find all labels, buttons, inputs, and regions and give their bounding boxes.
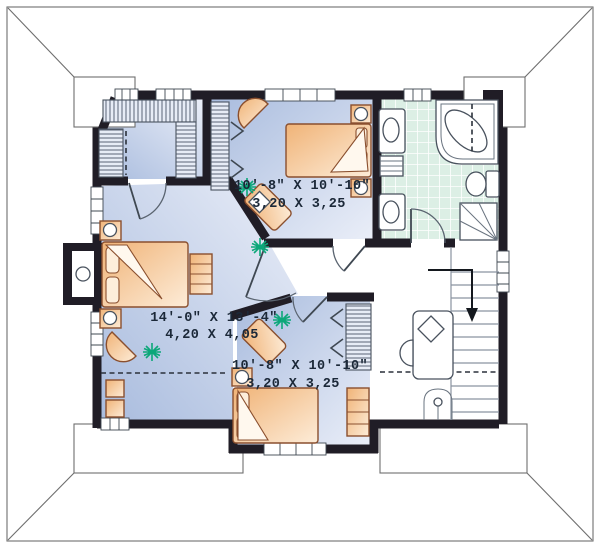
nightstand (100, 309, 121, 328)
vanity-sink (379, 194, 405, 230)
bedroom-top-imperial: 10'-8" X 10'-10" (234, 179, 370, 194)
lower-roof-left (74, 424, 243, 473)
bedroom-top-metric: 3,20 X 3,25 (252, 197, 346, 212)
bed (233, 388, 318, 443)
lamp-icon (355, 108, 368, 121)
storage-box (106, 380, 124, 397)
bedroom-bottom-metric: 3,20 X 3,25 (246, 377, 340, 392)
window-icon (265, 89, 335, 101)
window-icon (115, 89, 138, 101)
window-icon (156, 89, 191, 101)
master-imperial: 14'-0" X 13'-4" (150, 311, 278, 326)
wardrobe (176, 122, 196, 178)
bathroom-cabinet (380, 156, 403, 176)
bed (102, 242, 188, 307)
wardrobe (103, 100, 196, 122)
toilet (466, 171, 499, 197)
corner-bathtub (436, 100, 498, 164)
dresser (347, 388, 369, 436)
bed (286, 124, 371, 177)
floor-plan: 10'-8" X 10'-10" 3,20 X 3,25 14'-0" X 13… (0, 0, 600, 548)
fireplace (63, 243, 103, 305)
corner-shower (460, 203, 497, 240)
window-icon (101, 418, 129, 430)
floor-plan-drawing: 10'-8" X 10'-10" 3,20 X 3,25 14'-0" X 13… (0, 0, 600, 548)
wardrobe (99, 129, 126, 177)
lamp-icon (104, 312, 117, 325)
bedroom-bottom-imperial: 10'-8" X 10'-10" (232, 359, 368, 374)
dresser (190, 254, 212, 294)
storage-box (106, 400, 124, 417)
vanity-sink (379, 109, 405, 153)
nightstand (100, 221, 121, 240)
window-icon (404, 89, 431, 101)
lower-roof-right (380, 424, 527, 473)
wardrobe (211, 102, 229, 190)
window-icon (264, 443, 326, 455)
lamp-icon (104, 224, 117, 237)
nightstand (351, 105, 371, 123)
pillow (106, 277, 119, 303)
master-metric: 4,20 X 4,05 (165, 328, 259, 343)
